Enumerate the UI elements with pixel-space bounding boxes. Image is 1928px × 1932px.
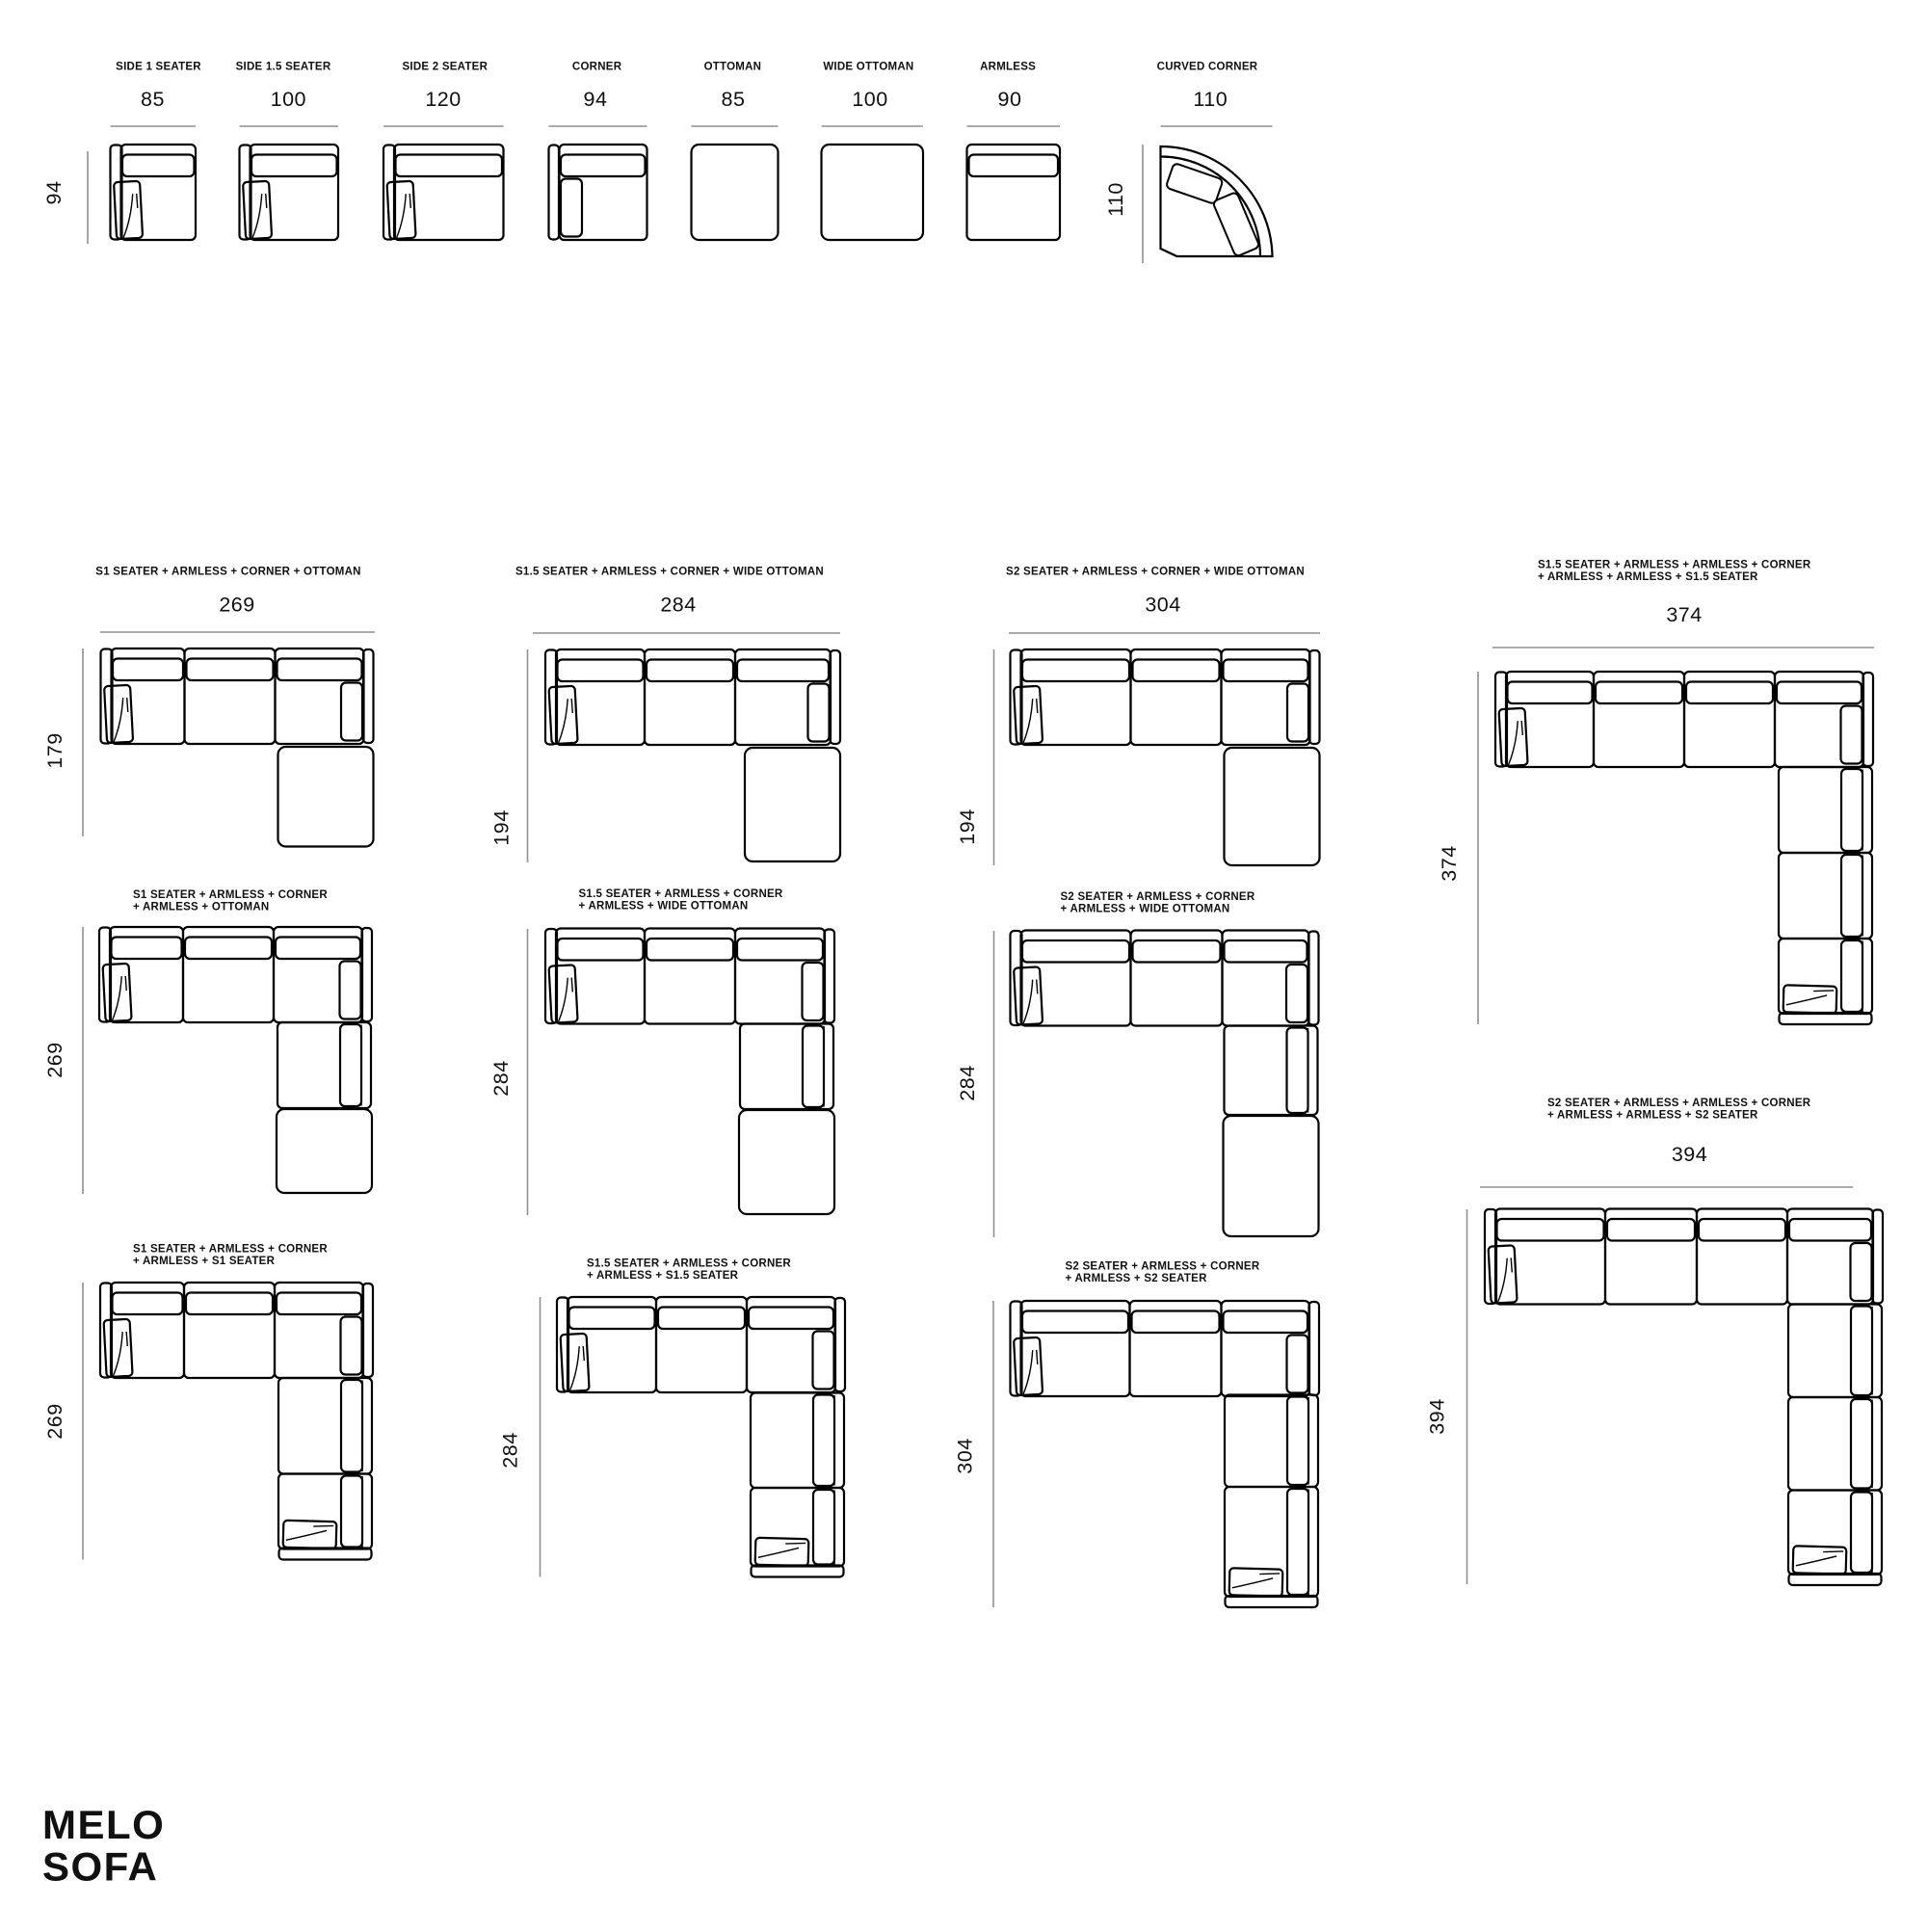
svg-text:110: 110: [1193, 88, 1228, 111]
svg-text:OTTOMAN: OTTOMAN: [704, 62, 762, 73]
svg-text:S1.5 SEATER + ARMLESS + CORNER: S1.5 SEATER + ARMLESS + CORNER + WIDE OT…: [515, 567, 824, 578]
svg-text:S1 SEATER + ARMLESS + CORNER: S1 SEATER + ARMLESS + CORNER: [133, 889, 328, 901]
svg-text:284: 284: [956, 1065, 979, 1100]
svg-text:+ ARMLESS + S1.5 SEATER: + ARMLESS + S1.5 SEATER: [587, 1270, 739, 1282]
svg-text:SIDE 1.5 SEATER: SIDE 1.5 SEATER: [236, 62, 331, 73]
svg-text:S2 SEATER + ARMLESS + ARMLESS: S2 SEATER + ARMLESS + ARMLESS + CORNER: [1547, 1098, 1811, 1109]
svg-text:94: 94: [584, 88, 608, 111]
svg-text:85: 85: [141, 88, 165, 111]
svg-text:+ ARMLESS + ARMLESS + S1.5 SEA: + ARMLESS + ARMLESS + S1.5 SEATER: [1538, 571, 1758, 583]
svg-text:284: 284: [489, 1060, 513, 1096]
svg-text:S2 SEATER + ARMLESS + CORNER: S2 SEATER + ARMLESS + CORNER: [1066, 1261, 1260, 1273]
svg-text:S1 SEATER + ARMLESS + CORNER: S1 SEATER + ARMLESS + CORNER: [133, 1244, 328, 1256]
svg-text:110: 110: [1104, 182, 1127, 217]
svg-text:SOFA: SOFA: [42, 1844, 158, 1890]
svg-text:284: 284: [660, 594, 696, 617]
svg-text:269: 269: [43, 1042, 66, 1077]
svg-text:304: 304: [954, 1438, 977, 1473]
svg-text:394: 394: [1426, 1398, 1449, 1434]
svg-text:CORNER: CORNER: [572, 62, 622, 73]
svg-text:100: 100: [852, 88, 887, 111]
svg-text:100: 100: [271, 88, 306, 111]
svg-text:284: 284: [499, 1432, 522, 1468]
svg-text:S1.5 SEATER + ARMLESS + CORNER: S1.5 SEATER + ARMLESS + CORNER: [587, 1258, 791, 1270]
svg-text:304: 304: [1145, 594, 1180, 617]
svg-text:90: 90: [998, 88, 1022, 111]
svg-text:WIDE OTTOMAN: WIDE OTTOMAN: [823, 62, 913, 73]
svg-text:+ ARMLESS + ARMLESS + S2 SEATE: + ARMLESS + ARMLESS + S2 SEATER: [1547, 1109, 1758, 1121]
svg-text:+ ARMLESS + OTTOMAN: + ARMLESS + OTTOMAN: [133, 901, 270, 913]
svg-text:374: 374: [1438, 845, 1461, 881]
svg-text:269: 269: [219, 594, 254, 617]
svg-text:94: 94: [42, 181, 66, 205]
svg-text:S1.5 SEATER + ARMLESS + ARMLES: S1.5 SEATER + ARMLESS + ARMLESS + CORNER: [1538, 560, 1811, 571]
svg-text:194: 194: [956, 808, 979, 844]
svg-text:394: 394: [1672, 1143, 1707, 1166]
svg-text:194: 194: [490, 809, 514, 845]
svg-text:120: 120: [425, 88, 461, 111]
svg-text:374: 374: [1666, 603, 1702, 626]
svg-text:SIDE 1 SEATER: SIDE 1 SEATER: [116, 62, 201, 73]
svg-text:85: 85: [722, 88, 746, 111]
svg-text:S1.5 SEATER + ARMLESS + CORNER: S1.5 SEATER + ARMLESS + CORNER: [579, 888, 783, 900]
svg-text:S1 SEATER + ARMLESS + CORNER +: S1 SEATER + ARMLESS + CORNER + OTTOMAN: [95, 567, 360, 578]
svg-text:269: 269: [43, 1403, 66, 1439]
svg-text:CURVED CORNER: CURVED CORNER: [1157, 62, 1258, 73]
svg-text:+ ARMLESS + S1 SEATER: + ARMLESS + S1 SEATER: [133, 1256, 276, 1267]
svg-text:S2 SEATER + ARMLESS + CORNER: S2 SEATER + ARMLESS + CORNER: [1061, 891, 1255, 903]
svg-text:+ ARMLESS + WIDE OTTOMAN: + ARMLESS + WIDE OTTOMAN: [579, 900, 749, 912]
svg-text:+ ARMLESS + S2 SEATER: + ARMLESS + S2 SEATER: [1066, 1273, 1208, 1284]
svg-text:179: 179: [43, 732, 66, 768]
svg-text:+ ARMLESS + WIDE OTTOMAN: + ARMLESS + WIDE OTTOMAN: [1061, 903, 1230, 914]
svg-text:MELO: MELO: [42, 1802, 165, 1847]
svg-text:SIDE 2 SEATER: SIDE 2 SEATER: [402, 62, 488, 73]
svg-text:ARMLESS: ARMLESS: [980, 62, 1036, 73]
svg-text:S2 SEATER + ARMLESS + CORNER +: S2 SEATER + ARMLESS + CORNER + WIDE OTTO…: [1006, 567, 1305, 578]
